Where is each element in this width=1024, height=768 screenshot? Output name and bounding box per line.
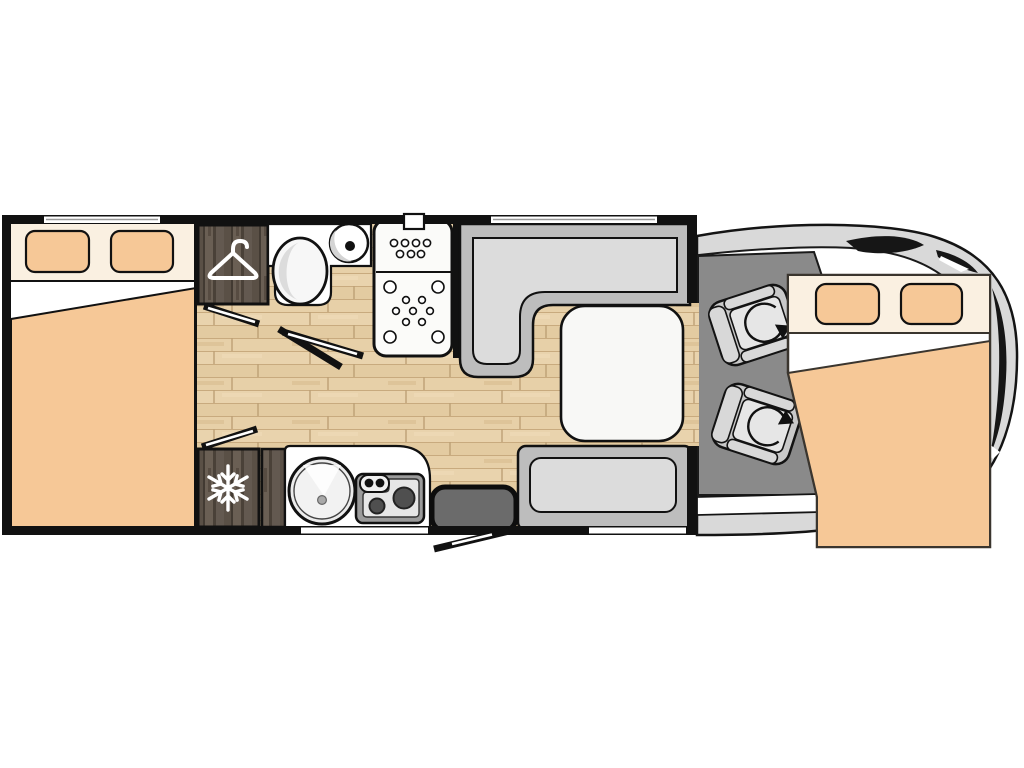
wardrobe [198, 225, 268, 304]
floorplan [0, 0, 1024, 768]
wall-left [2, 215, 11, 535]
shower-wall-outlet [404, 214, 424, 229]
wall-right-lower [687, 446, 697, 535]
overcab-bed [788, 275, 990, 547]
stove-knob [376, 479, 385, 488]
shower-shelf-divider [453, 218, 459, 358]
pillow [26, 231, 89, 272]
burner-small [370, 499, 385, 514]
pillow [901, 284, 962, 324]
overcab-bed-duvet [788, 341, 990, 547]
shower [374, 220, 452, 356]
floorplan-canvas [0, 0, 1024, 768]
fridge [198, 449, 259, 527]
kitchen-sink-drain [318, 496, 327, 505]
stove-knobs [360, 475, 389, 492]
rear-bed [11, 224, 197, 527]
burner-large [394, 488, 415, 509]
stove-knob [365, 479, 374, 488]
side-bench-cushion [530, 458, 676, 512]
stove [356, 474, 424, 523]
pillow [816, 284, 879, 324]
cab-door-sill [697, 494, 821, 515]
kitchen [285, 446, 430, 528]
wall-right-upper [687, 215, 697, 303]
window-kitchen [301, 528, 428, 534]
dinette-table [561, 306, 683, 441]
window-bench [589, 528, 686, 534]
wood-floor-walkway [687, 303, 699, 446]
washbasin-drain [345, 241, 355, 251]
pillow [111, 231, 173, 272]
kitchen-cabinet [262, 449, 285, 527]
rear-bed-duvet [11, 288, 196, 527]
entry-step [432, 487, 516, 531]
